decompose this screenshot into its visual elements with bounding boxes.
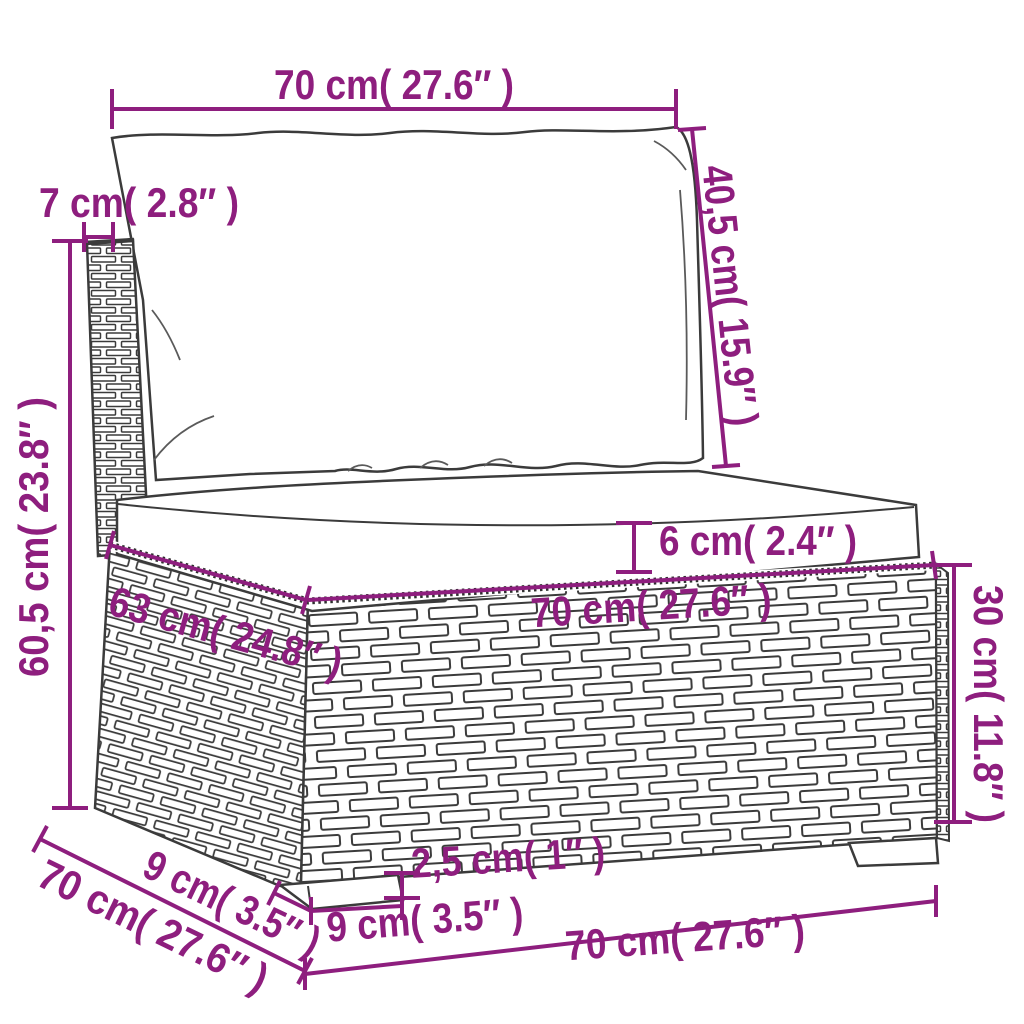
label-back-cushion-height: 40,5 cm( 15.9″ ) bbox=[693, 163, 767, 428]
sofa-dimension-diagram: 70 cm( 27.6″ ) 7 cm( 2.8″ ) 40,5 cm( 15.… bbox=[0, 0, 1024, 1024]
dimension-diagram-page: 70 cm( 27.6″ ) 7 cm( 2.8″ ) 40,5 cm( 15.… bbox=[0, 0, 1024, 1024]
right-foot bbox=[849, 838, 938, 866]
back-post-top-rim bbox=[85, 240, 134, 243]
label-back-thickness: 7 cm( 2.8″ ) bbox=[39, 179, 239, 226]
label-base-height: 30 cm( 11.8″ ) bbox=[965, 585, 1012, 823]
label-base-width: 70 cm( 27.6″ ) bbox=[564, 906, 807, 970]
label-seat-cushion-thickness: 6 cm( 2.4″ ) bbox=[659, 517, 857, 564]
label-total-height: 60,5 cm( 23.8″ ) bbox=[10, 397, 57, 677]
base-right-face bbox=[936, 564, 949, 841]
label-back-width: 70 cm( 27.6″ ) bbox=[274, 61, 514, 108]
dim-total-height-line bbox=[52, 241, 88, 808]
